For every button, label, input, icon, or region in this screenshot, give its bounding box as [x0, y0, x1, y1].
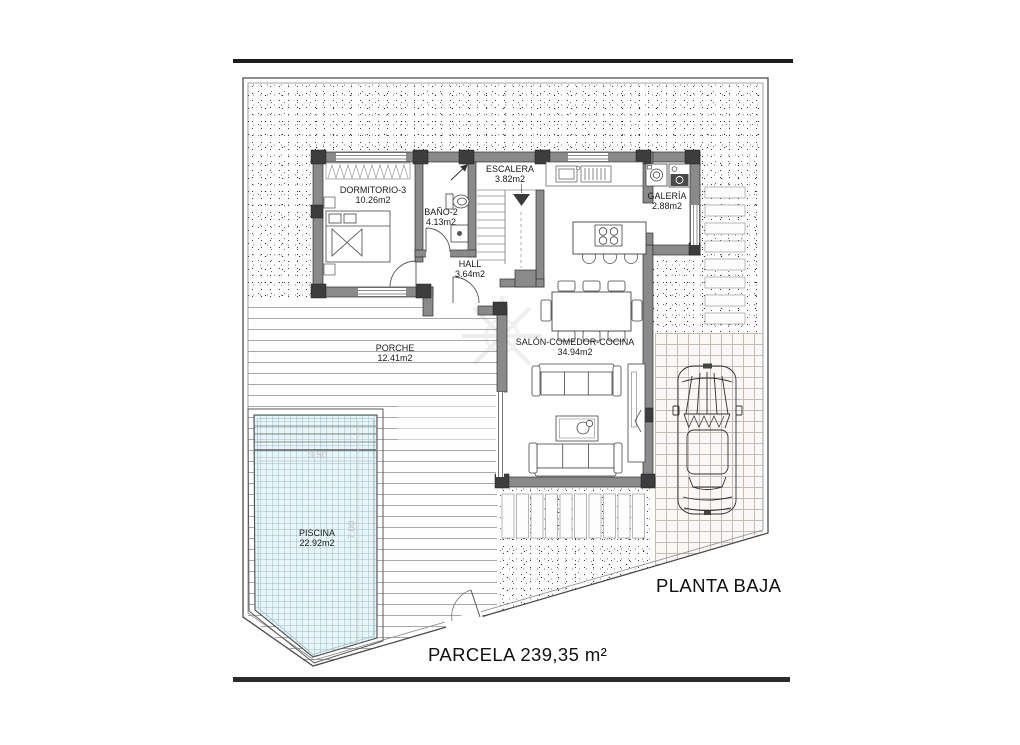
room-label-bano: BAÑO-24.13m2	[424, 207, 458, 228]
room-label-hall: HALL3.64m2	[455, 259, 485, 280]
parcel-title: PARCELA 239,35 m²	[428, 644, 607, 666]
room-label-salon: SALÓN-COMEDOR-COCINA34.94m2	[516, 337, 635, 358]
room-label-escalera: ESCALERA3.82m2	[486, 164, 534, 185]
room-label-galeria: GALERÍA2.88m2	[647, 191, 686, 212]
pool-length-dimension: 7.00	[347, 521, 358, 540]
floor-title: PLANTA BAJA	[656, 575, 781, 597]
room-label-piscina: PISCINA22.92m2	[299, 528, 335, 549]
plan-labels: DORMITORIO-310.26m2 BAÑO-24.13m2 ESCALER…	[0, 0, 1020, 745]
pool-width-dimension: 3.50	[309, 450, 328, 461]
room-label-dormitorio: DORMITORIO-310.26m2	[340, 185, 406, 206]
floor-plan-page: DORMITORIO-310.26m2 BAÑO-24.13m2 ESCALER…	[0, 0, 1020, 745]
room-label-porche: PORCHE12.41m2	[376, 343, 415, 364]
